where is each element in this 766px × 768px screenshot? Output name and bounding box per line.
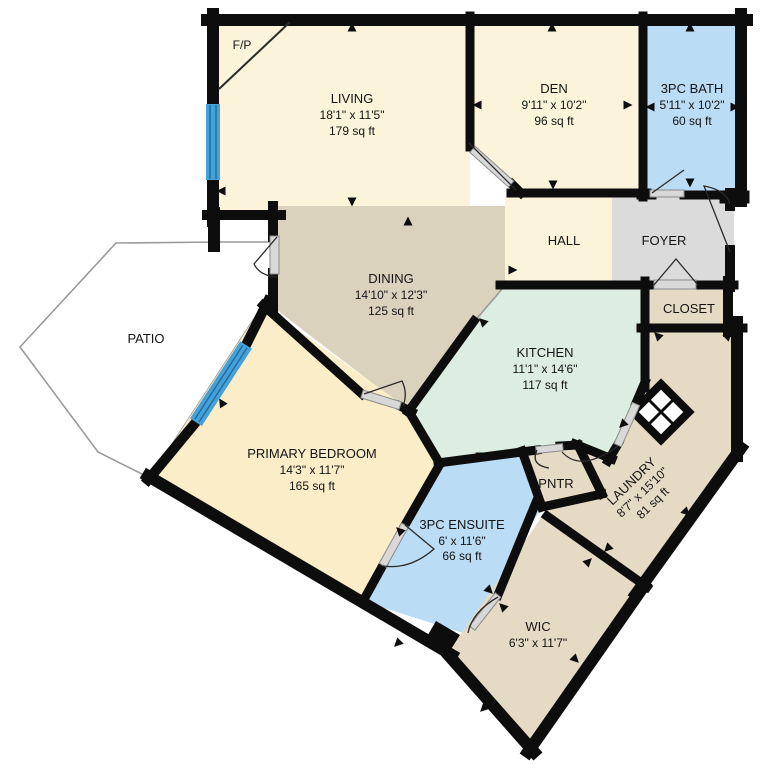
closet-label: CLOSET — [663, 301, 715, 316]
den-label: DEN — [540, 81, 567, 96]
patio-label: PATIO — [127, 331, 164, 346]
dining-dims: 14'10" x 12'3" — [355, 288, 428, 302]
bath-dims: 5'11" x 10'2" — [660, 98, 725, 112]
bath-area-label: 60 sq ft — [672, 114, 712, 128]
primary-bedroom-area-label: 165 sq ft — [289, 479, 336, 493]
dining-area-label: 125 sq ft — [368, 304, 415, 318]
kitchen-label: KITCHEN — [516, 345, 573, 360]
primary-bedroom-dims: 14'3" x 11'7" — [280, 463, 345, 477]
pantry-label: PNTR — [538, 476, 573, 491]
ensuite-label: 3PC ENSUITE — [419, 517, 505, 532]
dining-label: DINING — [368, 271, 414, 286]
floor-plan-page: F/P LIVING 18'1" x 11'5" 179 sq ft DEN 9… — [0, 0, 766, 768]
kitchen-dims: 11'1" x 14'6" — [513, 362, 578, 376]
ensuite-area-label: 66 sq ft — [442, 549, 482, 563]
living-dims: 18'1" x 11'5" — [320, 108, 385, 122]
floor-plan-drawing: F/P LIVING 18'1" x 11'5" 179 sq ft DEN 9… — [0, 0, 766, 768]
hall-label: HALL — [548, 233, 581, 248]
closet-threshold — [654, 280, 696, 289]
wic-label: WIC — [525, 619, 550, 634]
den-area-label: 96 sq ft — [534, 114, 574, 128]
foyer-label: FOYER — [642, 233, 687, 248]
primary-bedroom-label: PRIMARY BEDROOM — [247, 446, 377, 461]
living-label: LIVING — [331, 91, 374, 106]
ensuite-dims: 6' x 11'6" — [438, 534, 485, 548]
patio-door-leaf — [270, 236, 279, 274]
living-area: 179 sq ft — [329, 124, 376, 138]
dimension-arrow-icon — [391, 637, 404, 650]
living-window — [206, 104, 220, 180]
wic-dims: 6'3" x 11'7" — [509, 636, 567, 650]
den-dims: 9'11" x 10'2" — [522, 98, 587, 112]
bath-label: 3PC BATH — [661, 81, 724, 96]
kitchen-area-label: 117 sq ft — [522, 378, 568, 392]
fireplace-label: F/P — [233, 38, 252, 52]
